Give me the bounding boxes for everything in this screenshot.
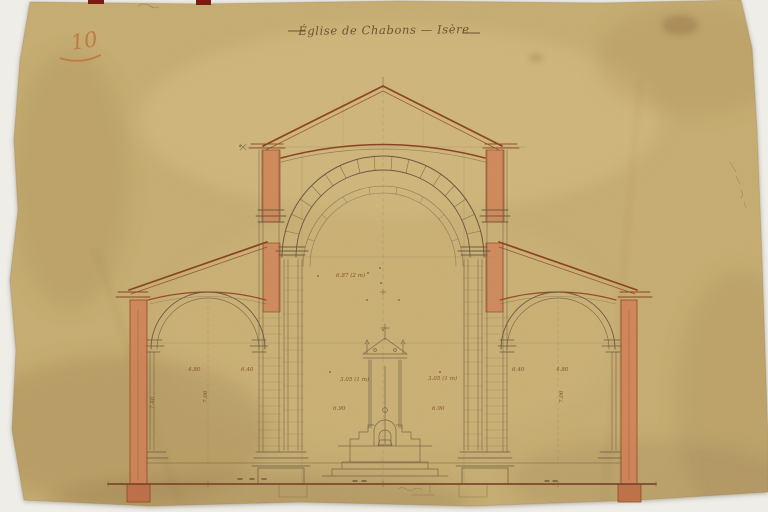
dimension-label: 4.80 <box>187 367 201 373</box>
dimension-label: 3.05 (1 m) <box>340 376 369 383</box>
dimension-label: 6.87 (2 m) <box>336 272 365 279</box>
dimension-label: 6.40 <box>512 367 525 373</box>
dimension-label: 7.06 <box>559 390 565 403</box>
photographed-drawing: Église de Chabons — Isère 10 <box>0 0 768 512</box>
dimension-label: 3.05 (1 m) <box>428 375 457 382</box>
title-text: Église de Chabons — Isère <box>297 22 469 38</box>
dimension-label: 6.40 <box>241 367 254 373</box>
drawing-title: Église de Chabons — Isère <box>288 22 480 38</box>
dimension-label: 7.40 <box>150 396 156 409</box>
dimension-label: 6.90 <box>333 406 346 412</box>
dimension-label: 6.90 <box>432 406 445 412</box>
page-number-text: 10 <box>69 27 99 55</box>
paper-stains <box>0 0 768 512</box>
dimension-label: 4.80 <box>555 367 569 373</box>
dimension-label: 7.06 <box>203 390 209 403</box>
